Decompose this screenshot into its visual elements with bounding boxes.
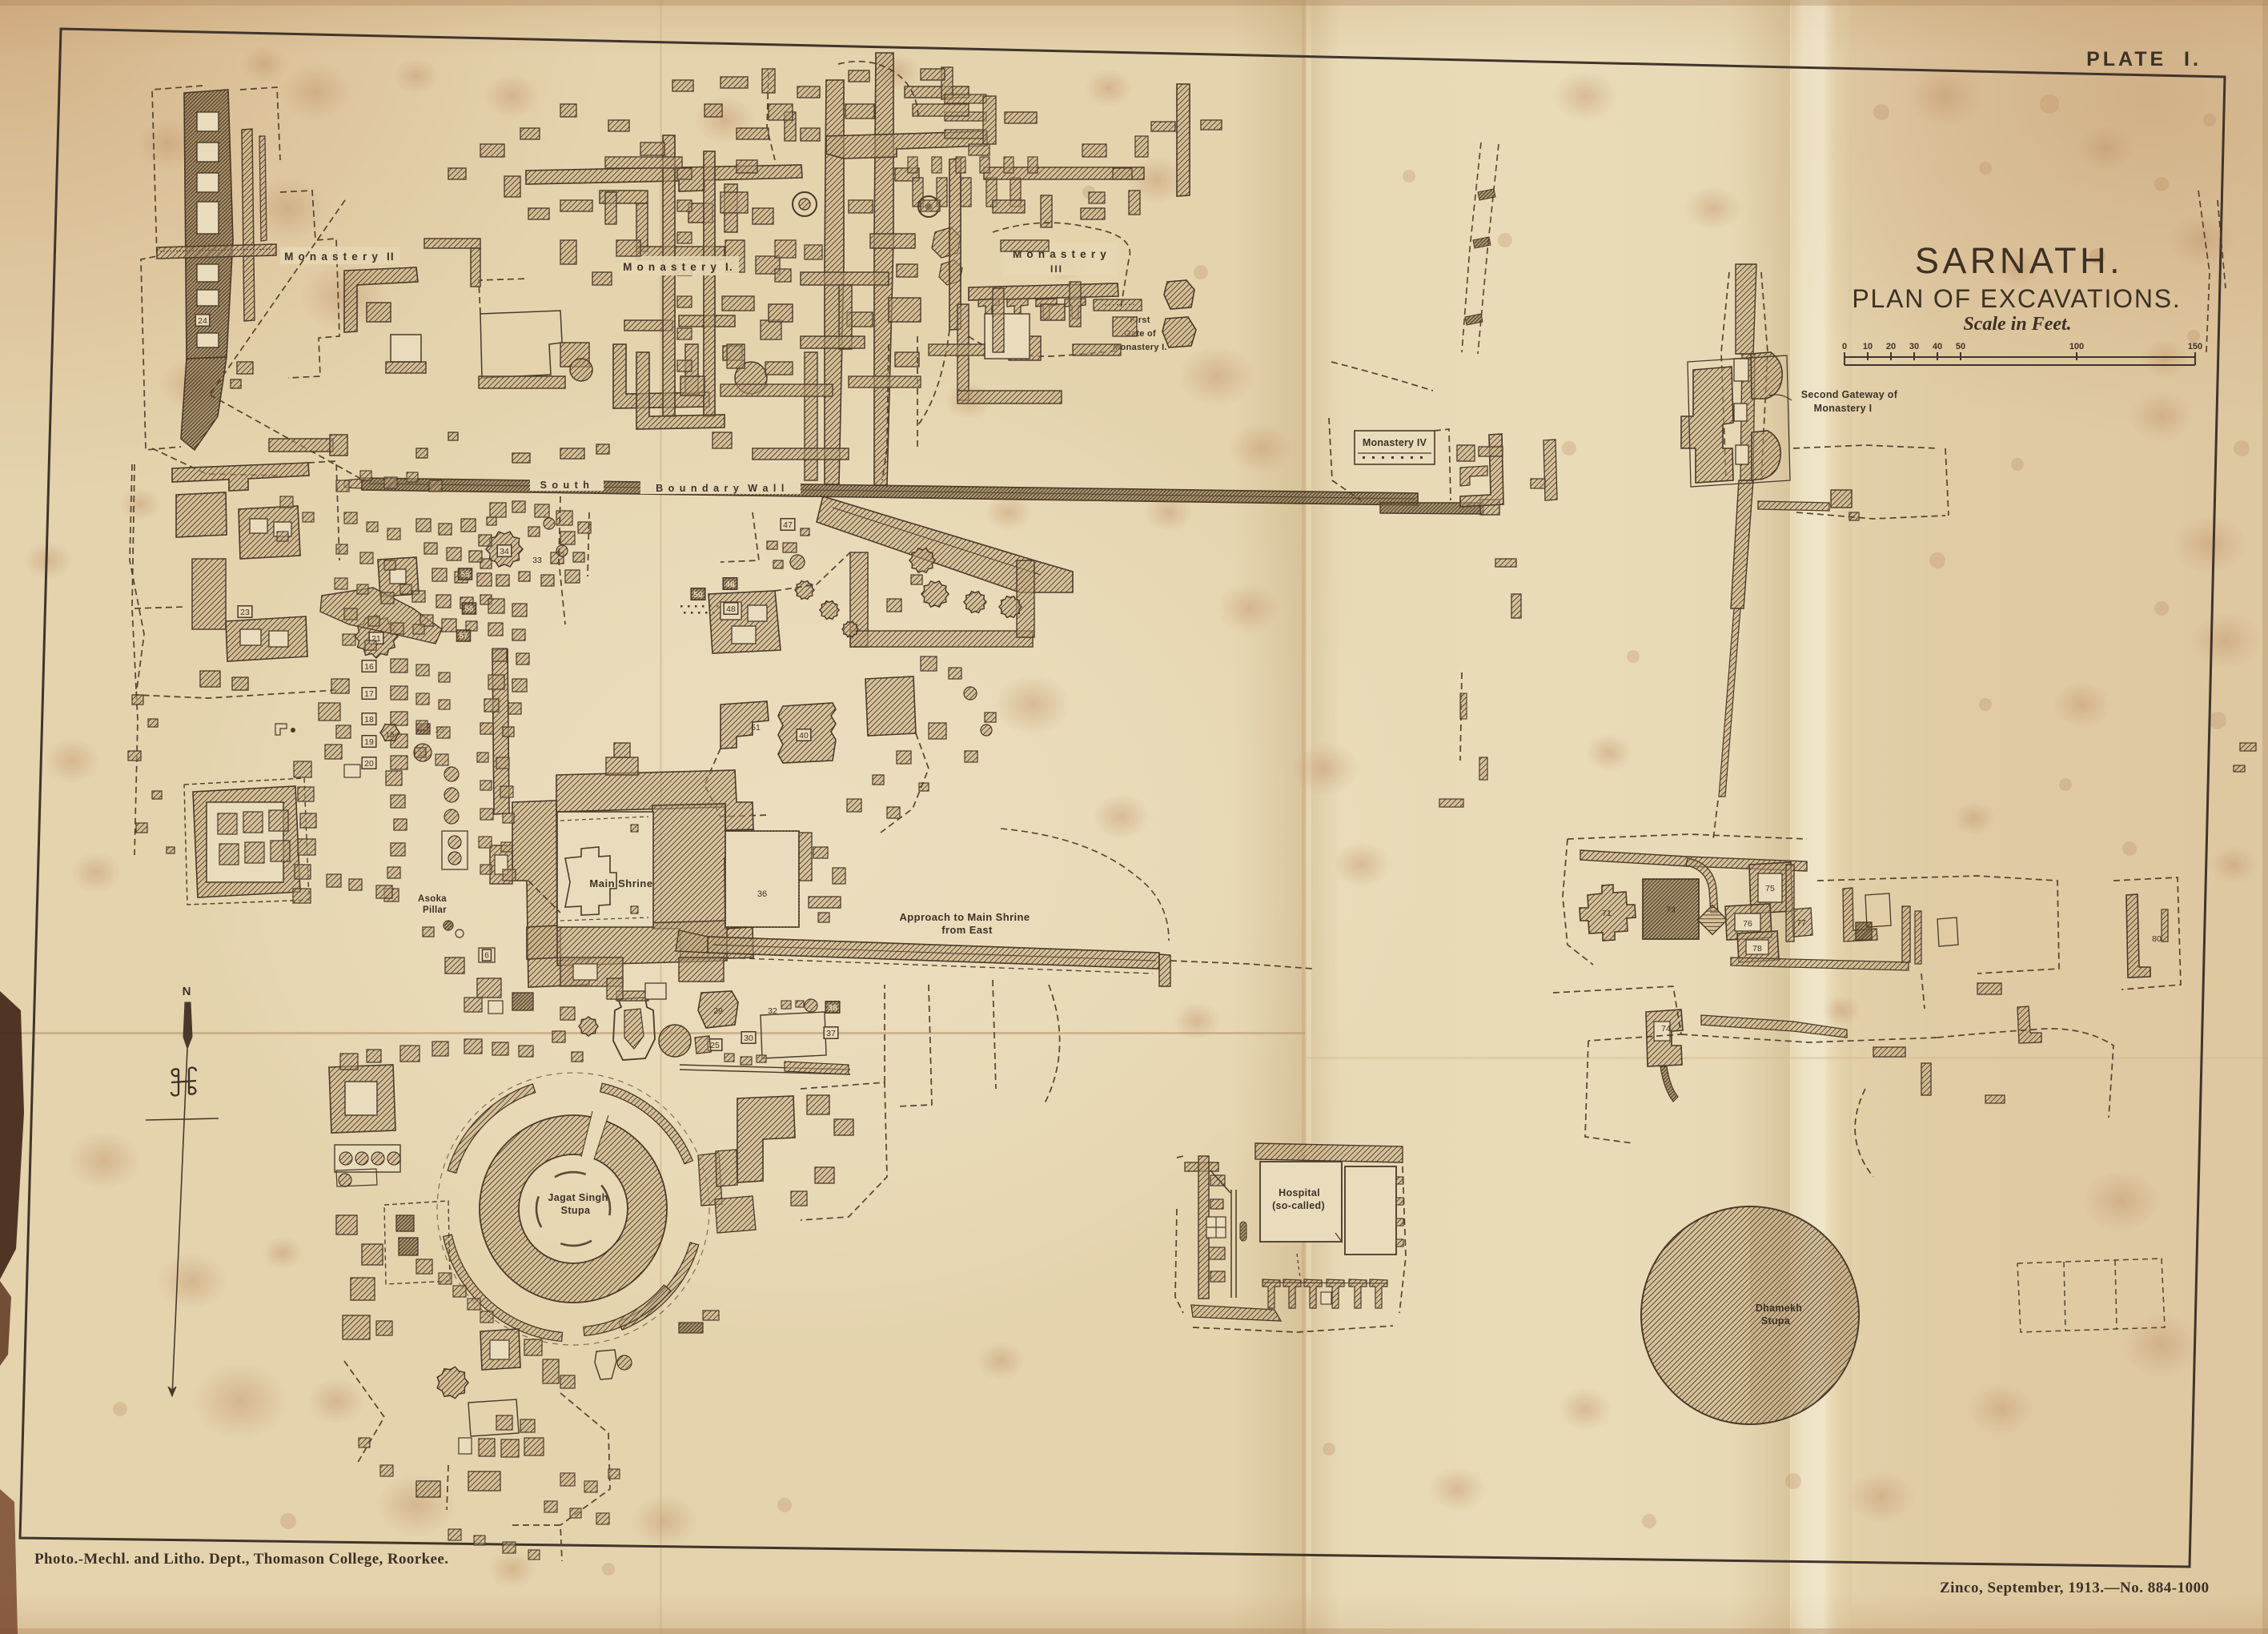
svg-text:77: 77	[1796, 918, 1806, 928]
svg-text:40: 40	[1933, 342, 1942, 351]
svg-text:71: 71	[1602, 909, 1612, 918]
svg-text:33: 33	[532, 556, 542, 565]
svg-text:51: 51	[751, 723, 761, 733]
svg-text:25: 25	[710, 1041, 720, 1050]
svg-text:6: 6	[484, 952, 489, 961]
svg-text:III: III	[1050, 263, 1063, 275]
svg-text:Photo.-Mechl. and Litho. Dept.: Photo.-Mechl. and Litho. Dept., Thomason…	[34, 1551, 448, 1568]
svg-text:74: 74	[1661, 1024, 1671, 1034]
svg-text:47: 47	[783, 520, 793, 530]
svg-text:23: 23	[240, 608, 250, 617]
svg-text:Monastery I: Monastery I	[1814, 403, 1873, 414]
svg-text:73: 73	[1666, 906, 1676, 915]
svg-text:from East: from East	[941, 924, 993, 936]
svg-text:16: 16	[364, 662, 374, 672]
svg-text:N: N	[183, 985, 191, 998]
svg-text:30: 30	[744, 1034, 753, 1043]
svg-text:Monastery IV: Monastery IV	[1363, 437, 1427, 448]
svg-text:29: 29	[713, 1006, 723, 1016]
svg-text:Hospital: Hospital	[1279, 1187, 1320, 1198]
svg-text:18: 18	[364, 715, 374, 725]
svg-text:17: 17	[364, 689, 374, 699]
svg-text:50: 50	[1956, 342, 1965, 351]
svg-text:78: 78	[1752, 944, 1762, 954]
svg-text:Scale in Feet.: Scale in Feet.	[1963, 314, 2071, 335]
svg-text:50: 50	[693, 590, 703, 600]
svg-text:B o u n d a r y W a l l: B o u n d a r y W a l l	[656, 483, 785, 494]
svg-text:Second Gateway of: Second Gateway of	[1801, 389, 1898, 400]
svg-text:34: 34	[500, 547, 509, 556]
svg-text:75: 75	[1765, 884, 1775, 893]
svg-text:46: 46	[725, 580, 735, 589]
svg-text:20: 20	[1886, 342, 1896, 351]
svg-text:M o n a s t e r y II: M o n a s t e r y II	[284, 251, 395, 263]
svg-text:19: 19	[364, 737, 374, 747]
svg-text:37: 37	[826, 1029, 836, 1038]
svg-text:Approach to Main Shrine: Approach to Main Shrine	[899, 911, 1030, 923]
svg-text:100: 100	[2069, 342, 2084, 351]
svg-text:PLATE I.: PLATE I.	[2086, 48, 2202, 70]
svg-text:48: 48	[726, 604, 736, 614]
svg-text:20: 20	[364, 759, 374, 769]
svg-text:10: 10	[1863, 342, 1873, 351]
svg-text:(so-called): (so-called)	[1272, 1200, 1325, 1211]
svg-text:57: 57	[459, 632, 468, 641]
svg-text:Asoka: Asoka	[418, 894, 447, 904]
svg-text:55: 55	[460, 571, 470, 580]
svg-text:SARNATH.: SARNATH.	[1915, 240, 2123, 281]
svg-text:Pillar: Pillar	[423, 905, 447, 915]
svg-text:15: 15	[386, 730, 395, 739]
svg-text:M o n a s t e r y I.: M o n a s t e r y I.	[623, 261, 733, 273]
svg-text:24: 24	[198, 316, 207, 326]
svg-text:36: 36	[757, 889, 767, 899]
svg-text:Stupa: Stupa	[1761, 1315, 1791, 1327]
svg-text:56: 56	[464, 605, 474, 614]
svg-text:30: 30	[1909, 342, 1919, 351]
svg-text:Dhamekh: Dhamekh	[1756, 1303, 1802, 1314]
svg-text:S o u t h: S o u t h	[540, 480, 591, 491]
svg-text:32: 32	[768, 1006, 777, 1016]
svg-text:PLAN OF EXCAVATIONS.: PLAN OF EXCAVATIONS.	[1852, 284, 2181, 313]
svg-text:76: 76	[1743, 919, 1752, 929]
svg-text:Main Shrine: Main Shrine	[589, 877, 652, 889]
svg-text:Zinco, September, 1913.—No. 88: Zinco, September, 1913.—No. 884‑1000	[1940, 1580, 2210, 1596]
svg-text:40: 40	[799, 731, 809, 741]
svg-text:150: 150	[2188, 342, 2202, 351]
svg-text:Jagat Singh: Jagat Singh	[548, 1192, 608, 1203]
svg-text:Stupa: Stupa	[561, 1205, 591, 1216]
svg-text:38: 38	[828, 1003, 837, 1013]
svg-text:0: 0	[1842, 342, 1847, 351]
svg-text:80: 80	[2152, 934, 2162, 944]
